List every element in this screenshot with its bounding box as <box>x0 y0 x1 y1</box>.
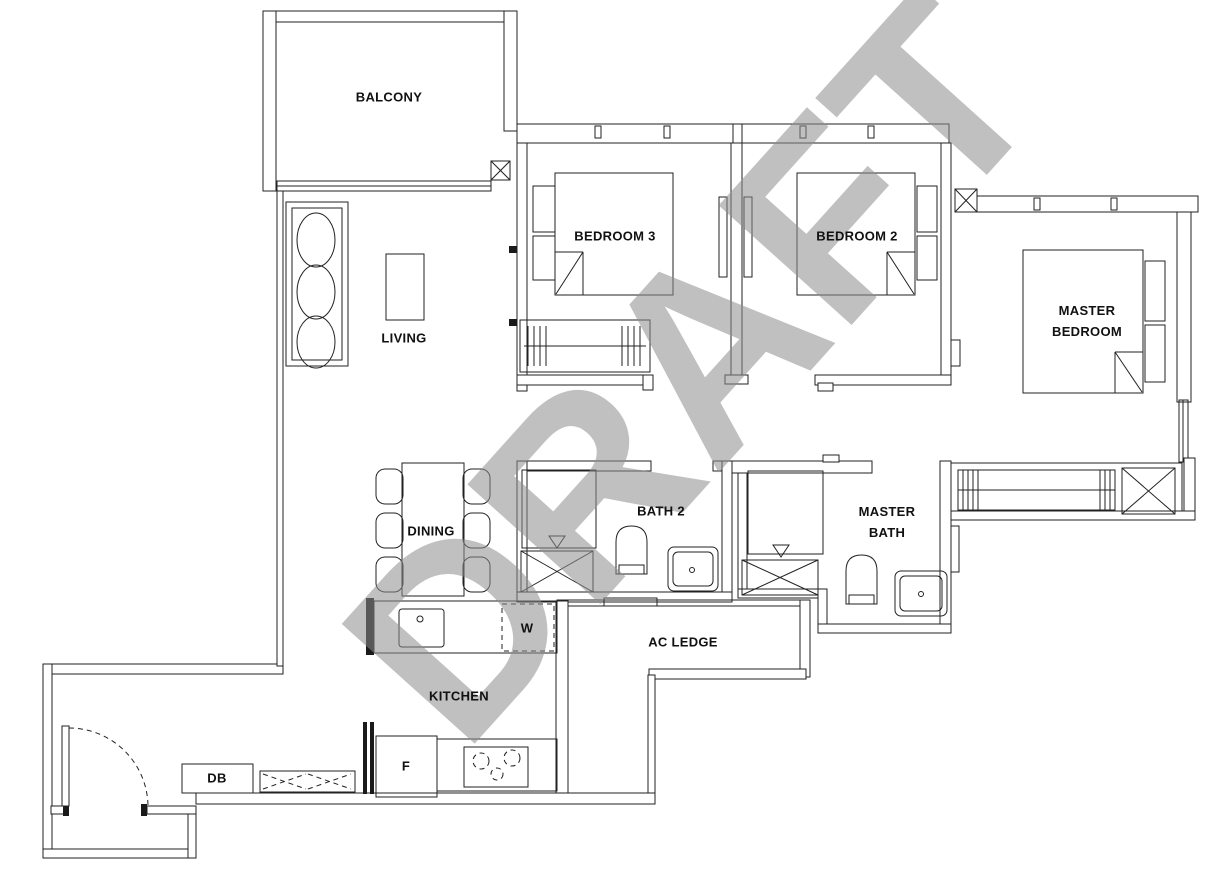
living-label: LIVING <box>381 328 426 349</box>
master-bath-shower <box>742 471 823 595</box>
master-bath-label-line1: MASTER <box>859 501 916 522</box>
ac-ledge-label: AC LEDGE <box>648 632 718 653</box>
bedrooms-exterior-wall <box>517 124 949 143</box>
column-marker-icon <box>491 161 510 180</box>
master-bedroom-label-line2: BEDROOM <box>1052 321 1122 342</box>
db-label: DB <box>207 768 226 789</box>
floorplan-drawing <box>0 0 1219 884</box>
bedroom2-label: BEDROOM 2 <box>816 226 897 247</box>
sofa <box>286 202 348 368</box>
living-walls <box>277 191 283 666</box>
master-bath-label-line2: BATH <box>859 522 916 543</box>
ceiling-hatch-icon <box>260 771 355 792</box>
washer-label: W <box>521 618 534 639</box>
fridge-label: F <box>402 756 410 777</box>
master-bedroom-label: MASTER BEDROOM <box>1052 300 1122 342</box>
floorplan-page: DRAFT BALCONY BEDROOM 3 BEDROOM 2 MASTER… <box>0 0 1219 884</box>
dining-label: DINING <box>407 521 454 542</box>
master-bath-toilet-icon <box>846 555 877 604</box>
master-wardrobe-ledge <box>946 463 1195 572</box>
kitchen-label: KITCHEN <box>429 686 489 707</box>
master-bath-label: MASTER BATH <box>859 501 916 543</box>
bedroom3-walls <box>509 143 752 391</box>
bath2-sink-icon <box>668 547 718 591</box>
entrance-door <box>62 726 148 807</box>
bath2-walls <box>517 461 732 606</box>
kitchen-walls <box>196 598 655 804</box>
bedroom3-console <box>520 320 650 372</box>
master-bath-sink-icon <box>895 571 947 616</box>
stove-icon <box>437 739 557 791</box>
bedroom3-label: BEDROOM 3 <box>574 226 655 247</box>
foyer-walls <box>43 664 283 858</box>
bath2-shower <box>521 470 596 592</box>
coffee-table <box>386 254 424 320</box>
master-bedroom-label-line1: MASTER <box>1052 300 1122 321</box>
bath2-label: BATH 2 <box>637 501 685 522</box>
ac-ledge-walls <box>557 600 810 800</box>
balcony-label: BALCONY <box>356 87 422 108</box>
bath2-toilet-icon <box>616 526 647 574</box>
